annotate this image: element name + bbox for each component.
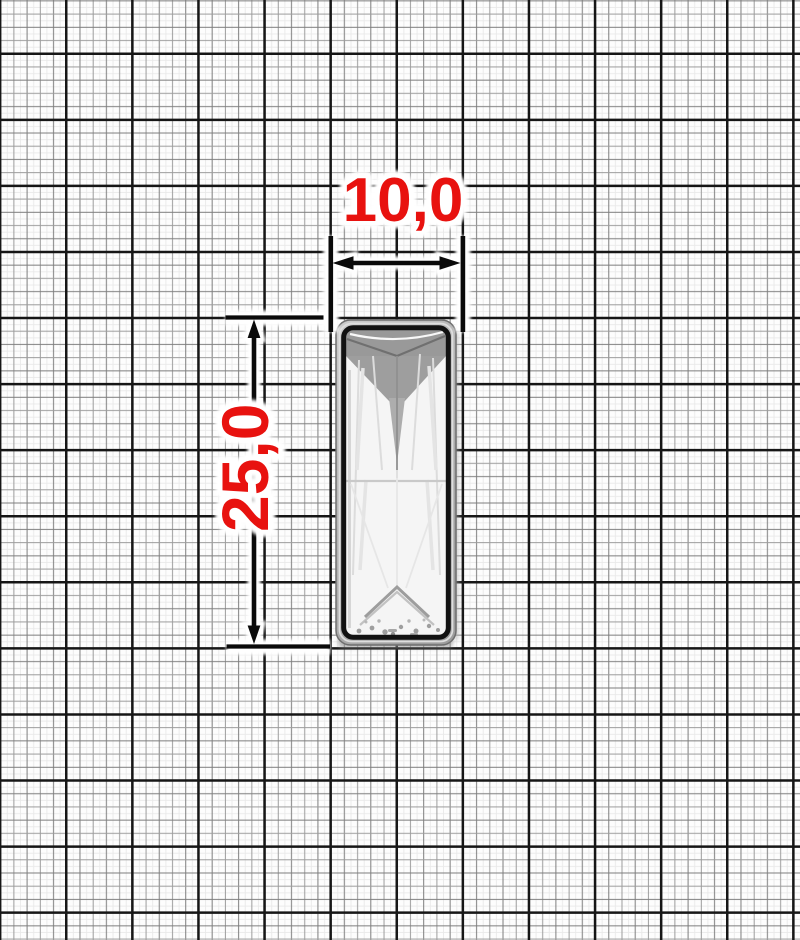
svg-text:25,0: 25,0 xyxy=(208,404,282,532)
svg-text:10,0: 10,0 xyxy=(343,166,464,235)
